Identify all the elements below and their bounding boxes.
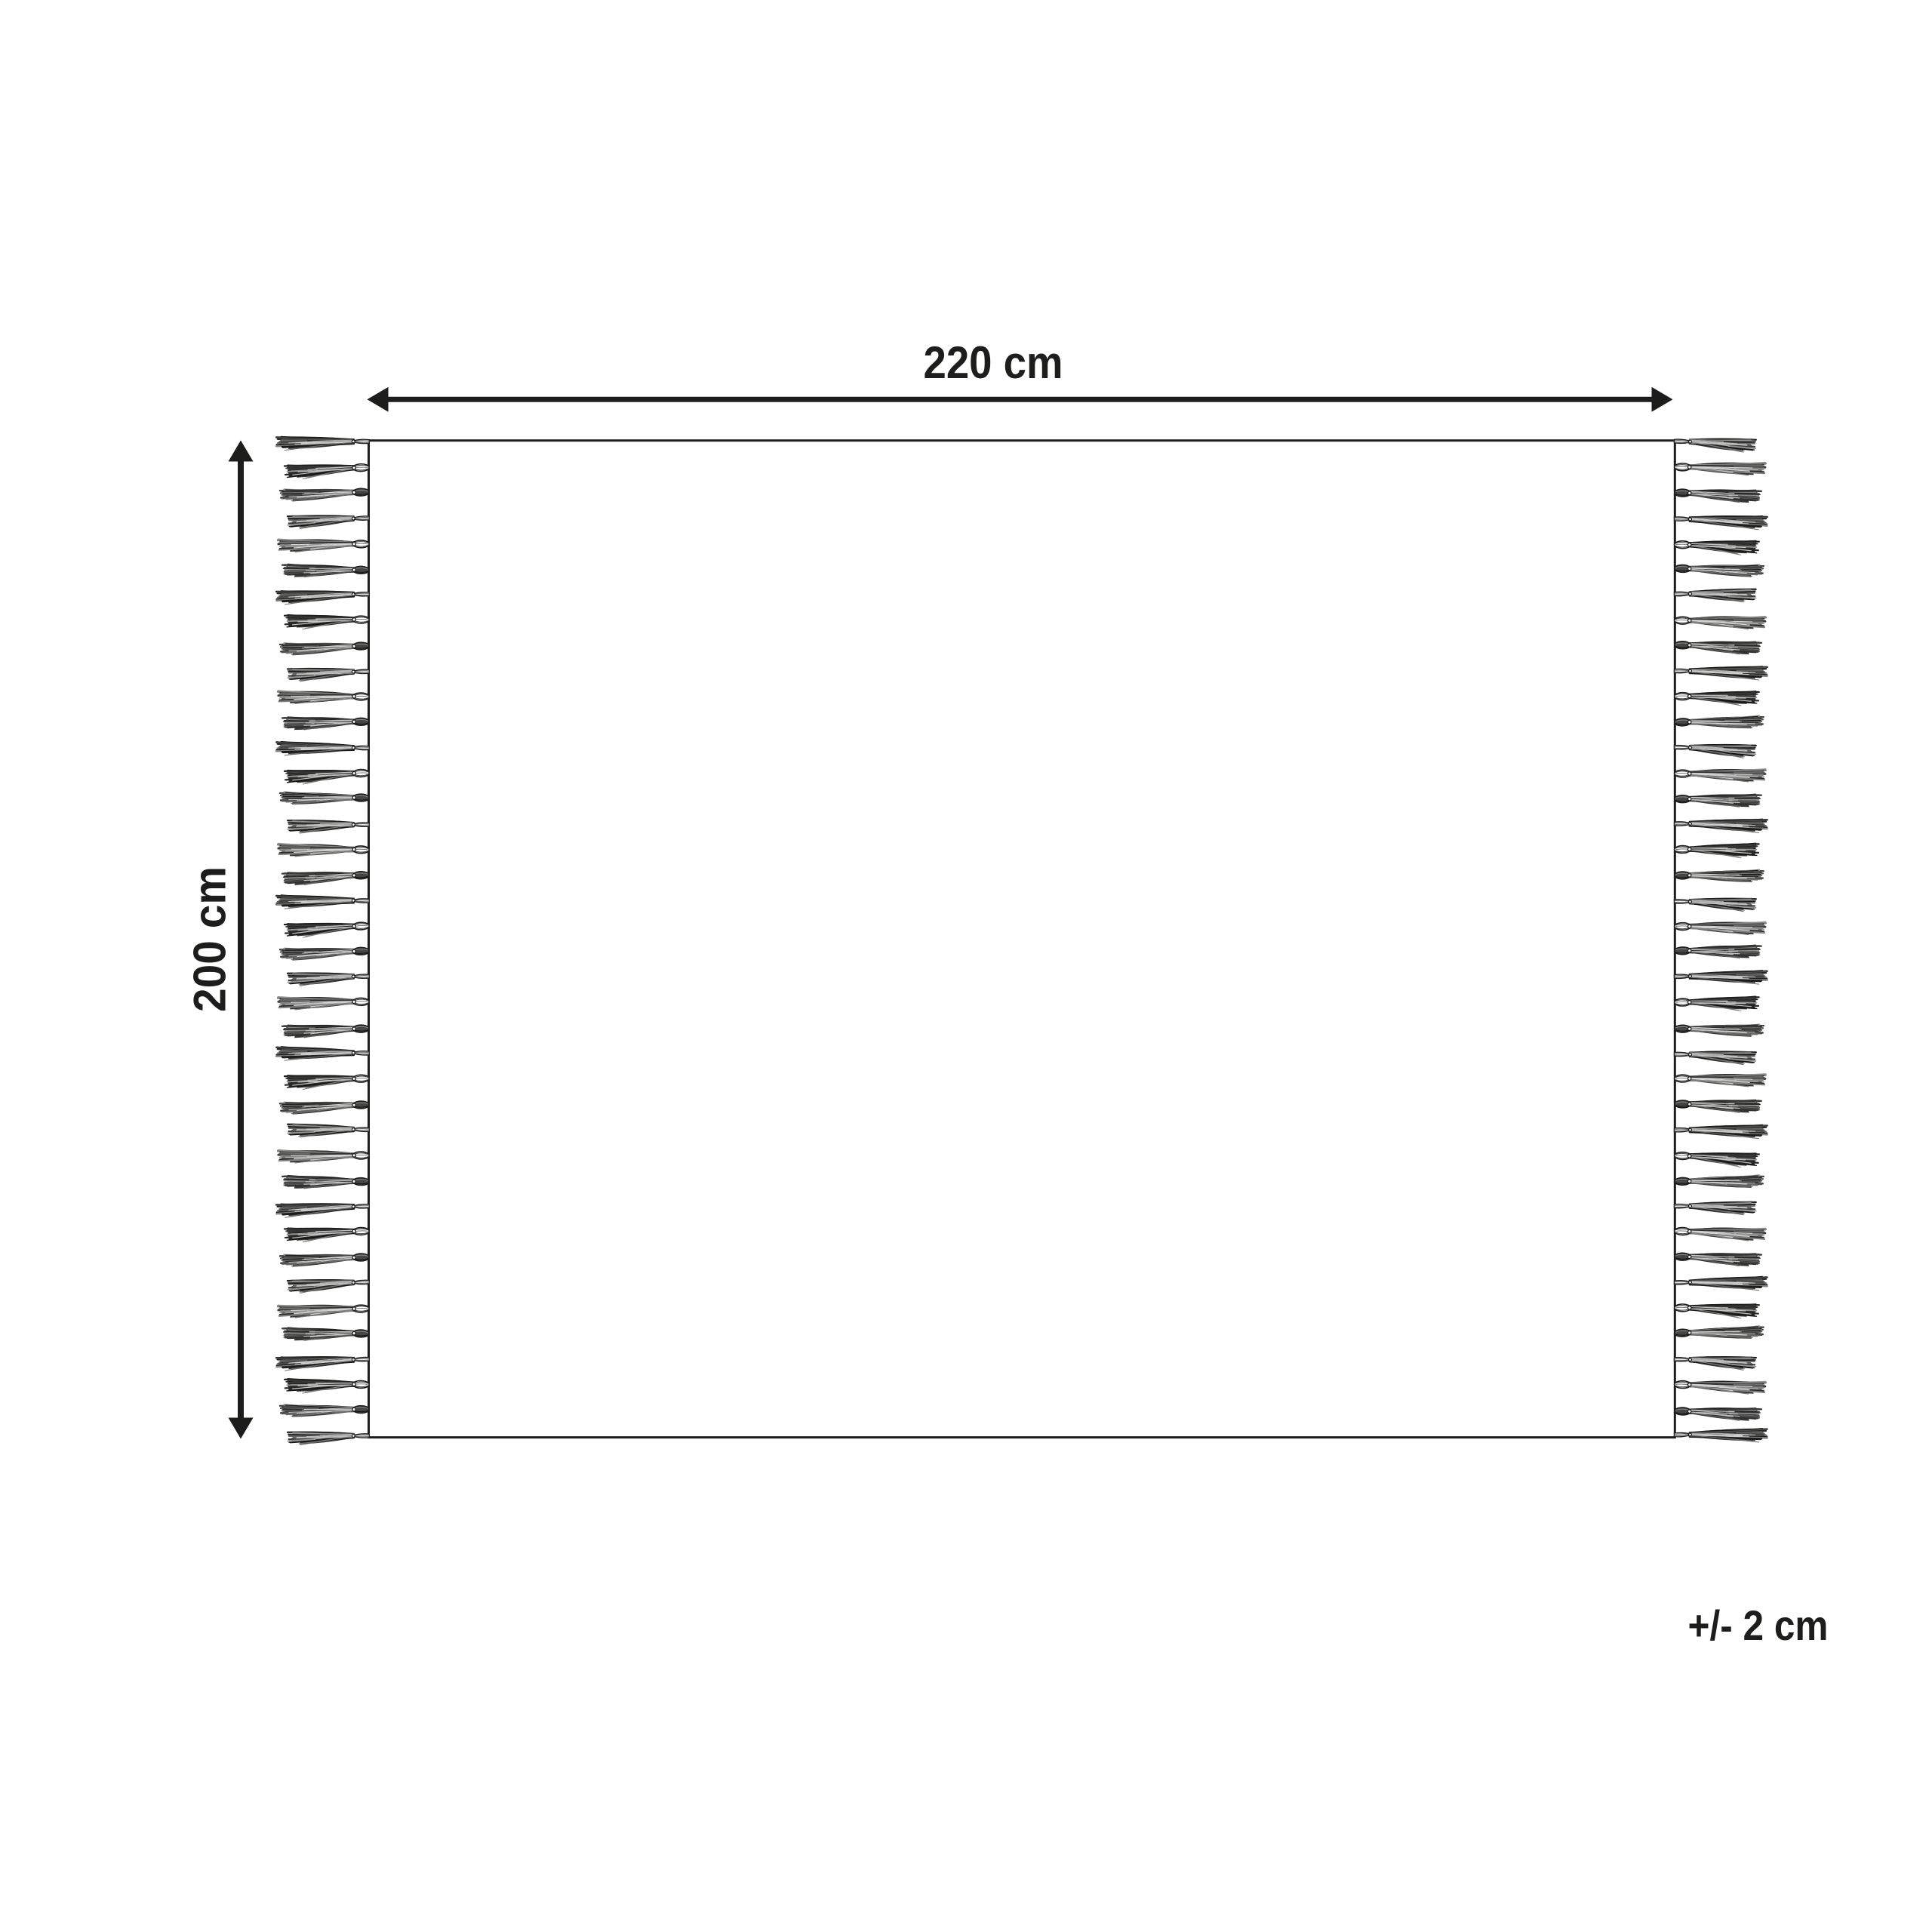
svg-text:220 cm: 220 cm <box>924 337 1063 388</box>
svg-text:200 cm: 200 cm <box>185 866 235 1012</box>
svg-text:+/- 2 cm: +/- 2 cm <box>1688 1602 1829 1649</box>
